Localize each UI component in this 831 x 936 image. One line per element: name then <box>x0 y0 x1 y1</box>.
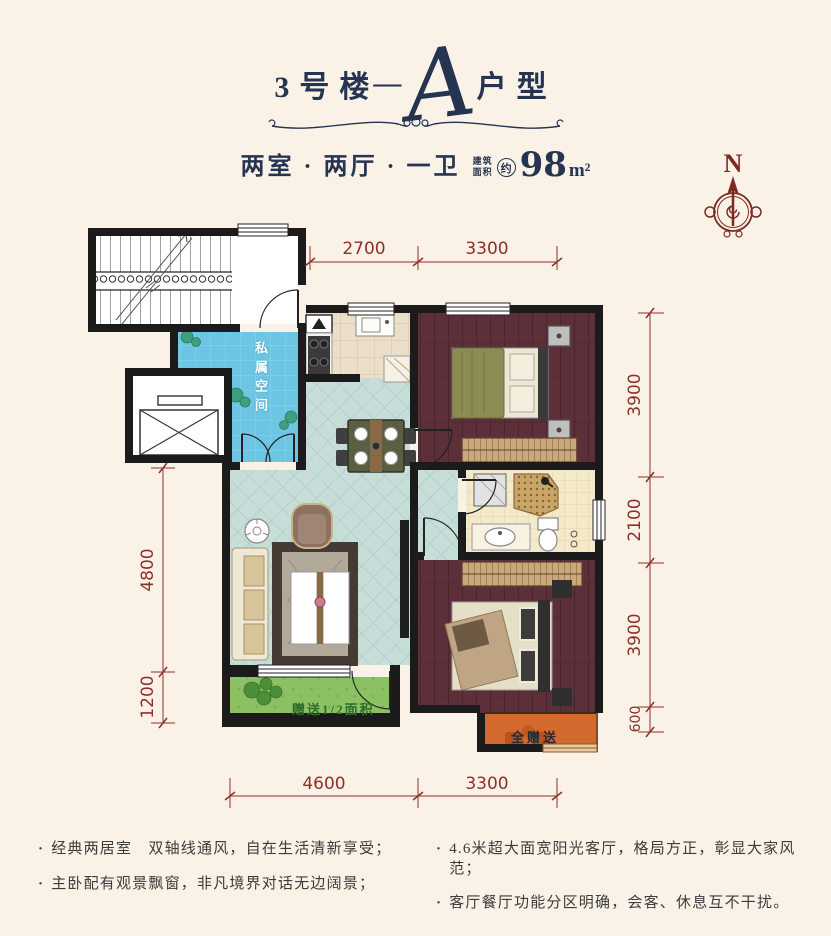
compass-icon: N <box>693 146 773 248</box>
feature-item: · 经典两居室 双轴线通风，自在生活清新享受； <box>38 840 428 860</box>
dining-table <box>336 420 416 472</box>
nightstand-icon <box>552 580 572 598</box>
dim-top-2: 3300 <box>465 239 508 259</box>
toilet-icon <box>539 529 557 551</box>
approx-circle-icon: 约 <box>497 158 516 177</box>
bullet-icon: · <box>436 894 442 914</box>
floorplan-drawing: 2700 3300 3900 2100 3900 600 4800 1200 4… <box>80 215 692 815</box>
flourish-divider-icon <box>266 112 566 138</box>
feature-text: 4.6米超大面宽阳光客厅，格局方正，彰显大家风范； <box>449 840 826 879</box>
tv-icon <box>400 520 409 638</box>
area-unit: m² <box>569 161 591 180</box>
coffee-table-icon <box>291 572 317 644</box>
feature-text: 经典两居室 双轴线通风，自在生活清新享受； <box>51 840 391 860</box>
dim-left-2: 1200 <box>138 675 158 718</box>
compass-north-label: N <box>724 149 743 178</box>
window-icon <box>446 303 510 315</box>
window-icon <box>593 500 605 540</box>
dim-left-1: 4800 <box>138 548 158 591</box>
elevator <box>133 376 224 455</box>
window-icon <box>258 665 350 677</box>
feature-item: · 4.6米超大面宽阳光客厅，格局方正，彰显大家风范； <box>436 840 826 879</box>
area-group: 建筑 面积 约 98 m² <box>473 151 591 180</box>
area-label: 建筑 面积 <box>473 156 493 177</box>
bullet-icon: · <box>436 840 442 879</box>
bullet-icon: · <box>38 840 44 860</box>
staircase <box>96 234 232 324</box>
full-gift-label: 全赠送 <box>511 727 559 746</box>
dim-right-3: 3900 <box>625 613 645 656</box>
feature-item: · 客厅餐厅功能分区明确，会客、休息互不干扰。 <box>436 894 826 914</box>
dim-bottom-2: 3300 <box>465 774 508 794</box>
title-dash: — <box>373 68 401 100</box>
window-icon <box>238 224 288 236</box>
dim-right-1: 3900 <box>625 373 645 416</box>
washbasin-icon <box>485 528 515 546</box>
unit-suffix: 户型 <box>477 62 557 106</box>
feature-text: 客厅餐厅功能分区明确，会客、休息互不干扰。 <box>449 894 789 914</box>
balcony-gift-label: 赠送1/2面积 <box>292 699 375 718</box>
private-space-label: 私属空间 <box>251 341 270 417</box>
feature-text: 主卧配有观景飘窗，非凡境界对话无边阔景； <box>51 875 375 895</box>
room-layout-text: 两室 · 两厅 · 一卫 <box>241 154 461 180</box>
building-number: 3号楼 <box>274 62 379 106</box>
feature-column-left: · 经典两居室 双轴线通风，自在生活清新享受； · 主卧配有观景飘窗，非凡境界对… <box>38 840 428 909</box>
floorplan-poster: 3号楼 — A 户型 两室 · 两厅 · 一卫 建筑 面积 约 98 m² N <box>0 0 831 936</box>
feature-item: · 主卧配有观景飘窗，非凡境界对话无边阔景； <box>38 875 428 895</box>
dim-bottom-1: 4600 <box>302 774 345 794</box>
dim-right-2: 2100 <box>625 498 645 541</box>
dim-right-4: 600 <box>628 706 644 733</box>
dim-top-1: 2700 <box>342 239 385 259</box>
bullet-icon: · <box>38 875 44 895</box>
window-icon <box>348 303 394 315</box>
feature-column-right: · 4.6米超大面宽阳光客厅，格局方正，彰显大家风范； · 客厅餐厅功能分区明确… <box>436 840 826 929</box>
nightstand-icon <box>552 688 572 706</box>
area-value: 98 <box>520 151 567 180</box>
